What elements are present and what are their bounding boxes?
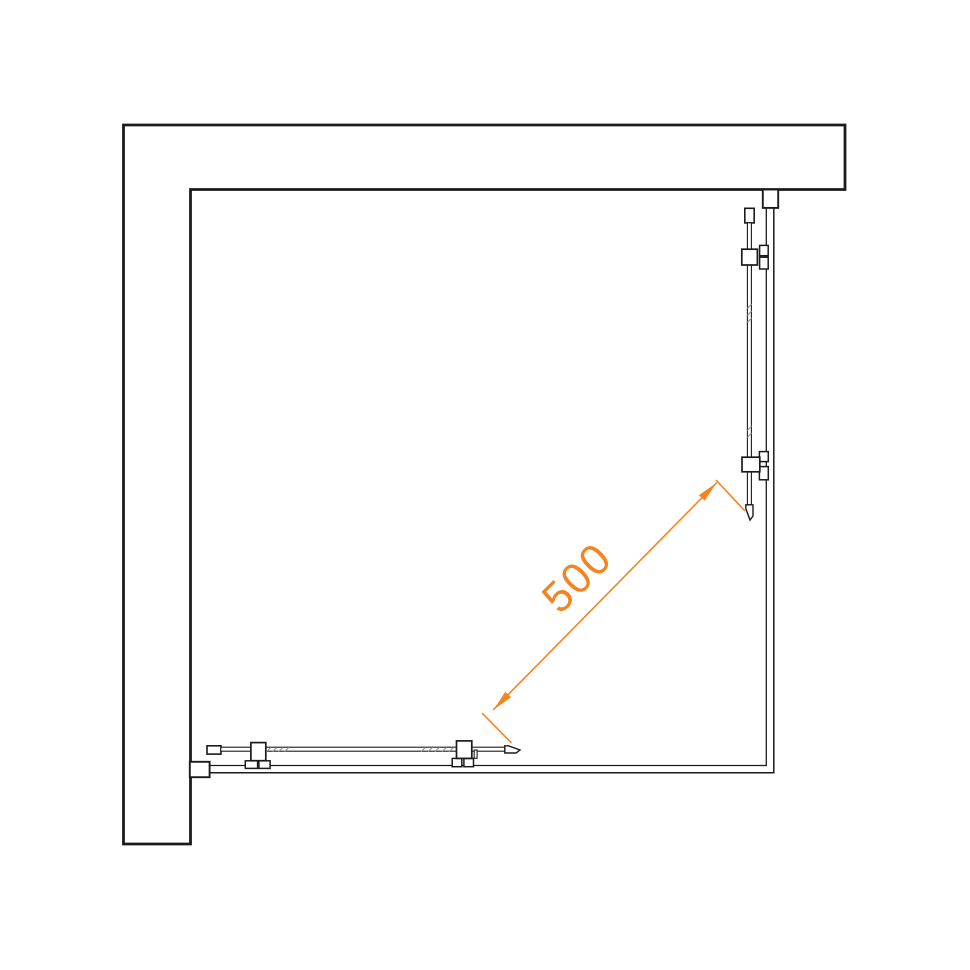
- dimension-500: 500: [483, 481, 745, 743]
- clamp-link: [474, 750, 477, 758]
- clamp-pad: [759, 452, 768, 462]
- glass-clamp-right-lower: [742, 452, 768, 480]
- glass-hatch-group: [267, 304, 752, 752]
- clamp-body: [742, 457, 760, 472]
- linework-group: [124, 125, 846, 844]
- door-end-profile-right: [745, 208, 754, 223]
- clamp-body: [742, 249, 758, 265]
- door-tip-right: [746, 505, 753, 520]
- clamp-pad: [452, 758, 462, 766]
- door-tip-bottom: [505, 746, 520, 753]
- dimension-line: [494, 483, 717, 710]
- clamp-pad: [464, 758, 474, 766]
- shower-enclosure-plan-drawing: 500: [0, 0, 970, 970]
- wall-bracket-right: [763, 190, 778, 208]
- dimension-extension-tick-start: [483, 714, 512, 743]
- clamp-pad: [760, 245, 769, 255]
- door-end-profile-bottom: [207, 746, 221, 754]
- dimension-extension-tick-end: [717, 481, 745, 511]
- dimension-label: 500: [533, 534, 622, 623]
- wall-bracket-bottom: [190, 762, 210, 777]
- glass-clamp-bottom-left: [245, 743, 270, 769]
- clamp-body: [251, 743, 266, 761]
- clamp-body: [457, 741, 472, 759]
- wall-outline: [124, 125, 846, 844]
- clamp-pad: [259, 761, 270, 769]
- glass-clamp-right-upper: [742, 245, 768, 269]
- fixed-glass-inner-edge: [209, 208, 766, 766]
- fixed-glass-outer-edge: [209, 208, 774, 773]
- clamp-pad: [759, 467, 768, 480]
- clamp-pad: [760, 257, 769, 269]
- clamp-pad: [245, 761, 257, 769]
- glass-clamp-bottom-right: [452, 741, 477, 767]
